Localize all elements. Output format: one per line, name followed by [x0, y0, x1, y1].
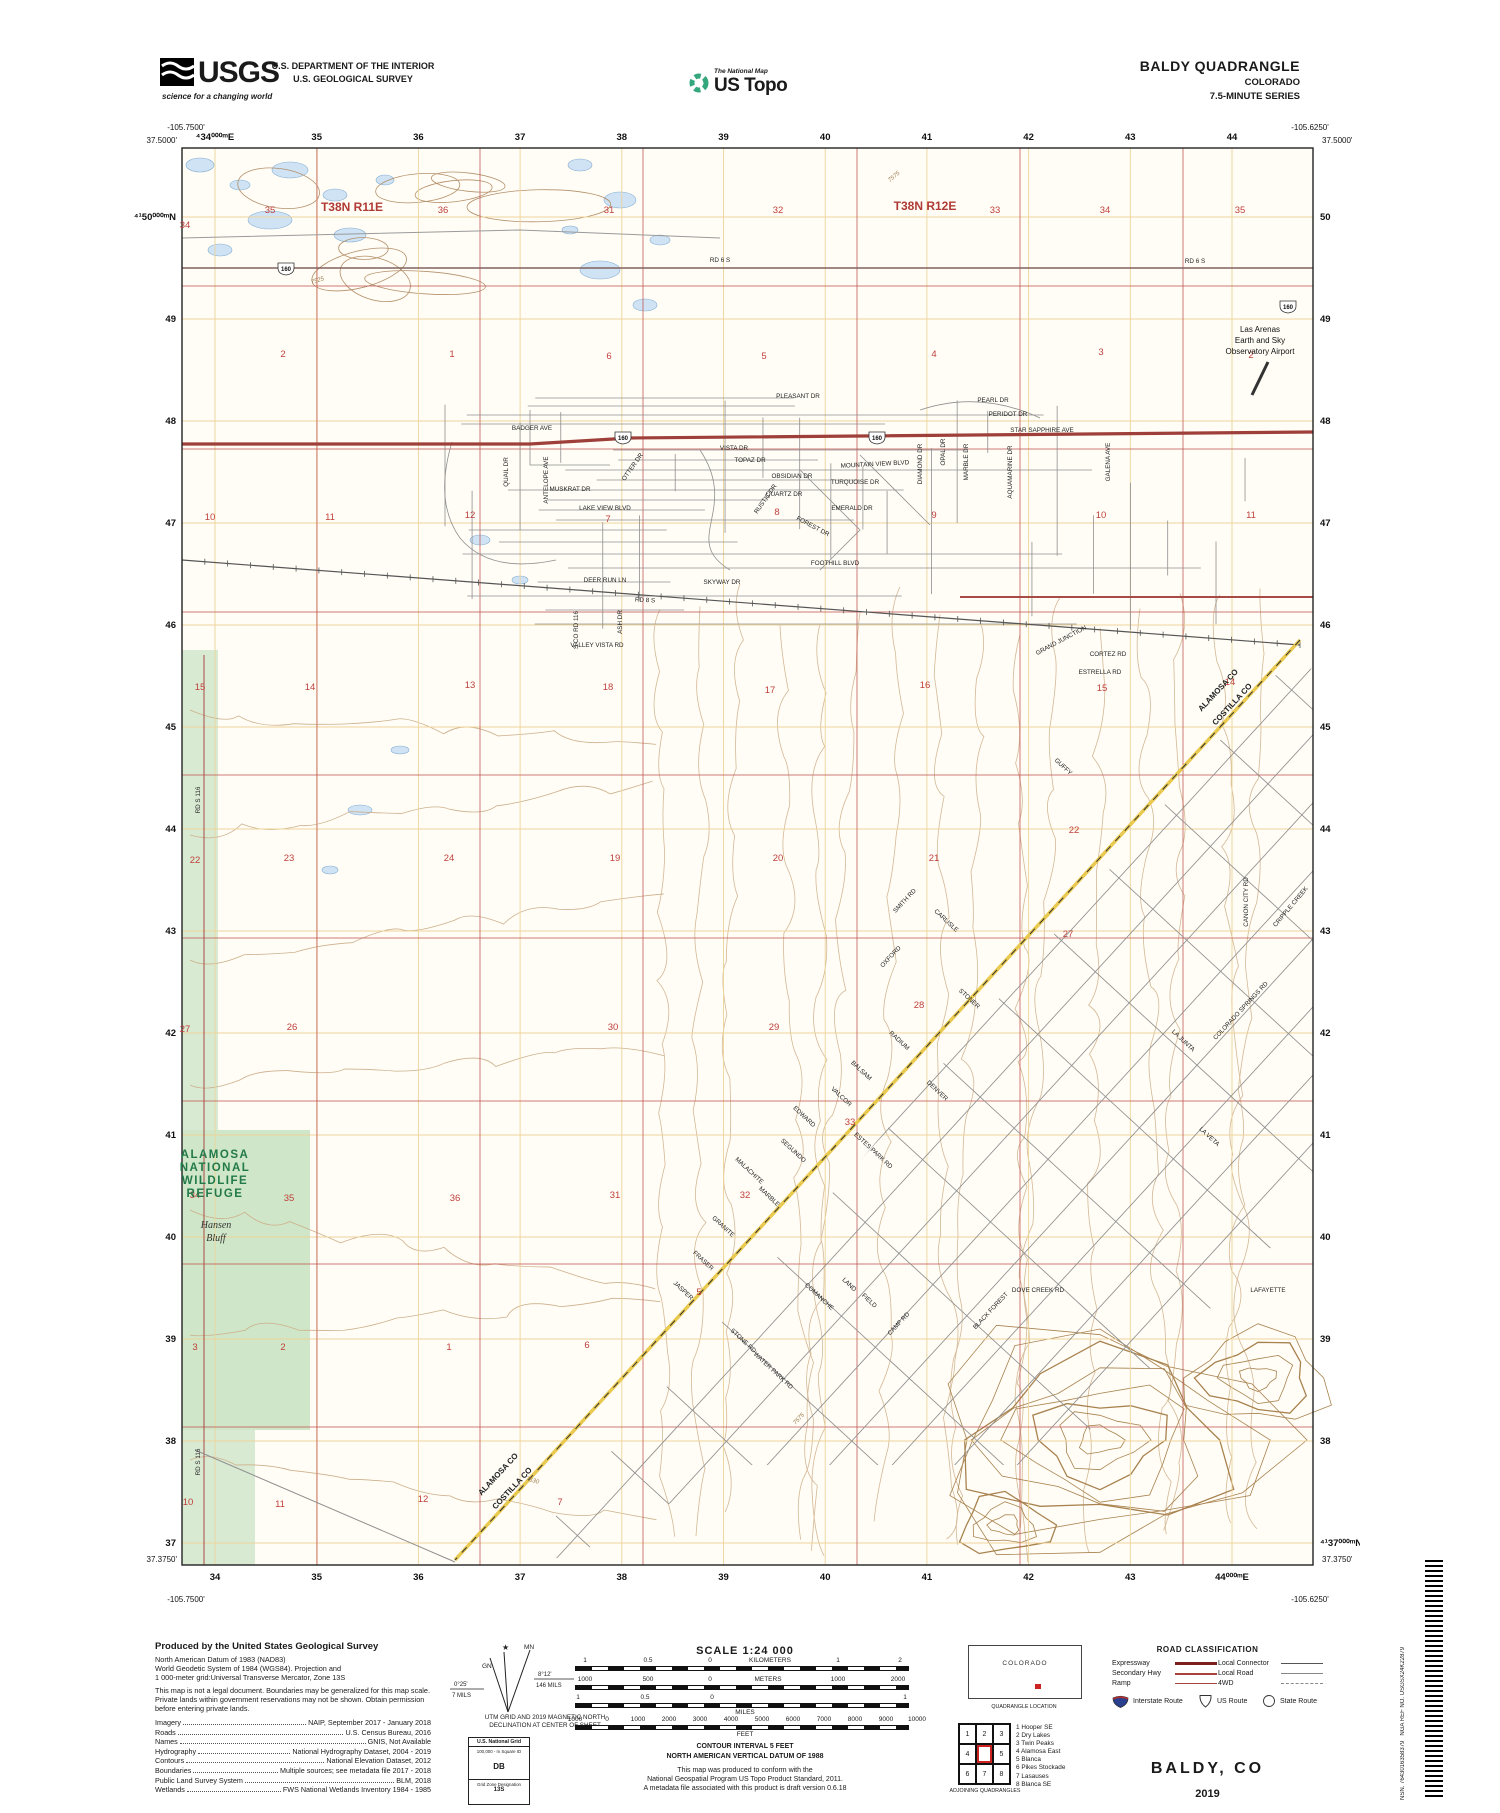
grid-label-right: 42 [1320, 1028, 1331, 1039]
section-number: 33 [845, 1117, 856, 1128]
credit-key: Contours [155, 1756, 184, 1766]
road-class-label: Local Connector [1218, 1660, 1276, 1667]
quad-series: 7.5-MINUTE SERIES [1040, 91, 1300, 102]
road-label: RD S 116 [195, 786, 202, 813]
credit-leader [245, 1782, 394, 1783]
road-class-line-sample [1175, 1683, 1217, 1684]
section-number: 36 [438, 205, 449, 216]
usgs-logo: USGS [160, 56, 279, 90]
dept-line2: U.S. GEOLOGICAL SURVEY [268, 73, 438, 86]
grid-label-right: 48 [1320, 416, 1331, 427]
section-number: 26 [287, 1022, 298, 1033]
svg-text:GN: GN [482, 1663, 492, 1670]
nsn-label: NSN. 7643016358379 NGA REF NO. USGSX24K2… [1398, 1560, 1420, 1800]
road-class-line-sample [1175, 1662, 1217, 1665]
road-label: CORTEZ RD [1090, 651, 1127, 658]
topo-map-canvas: ⁴34⁰⁰⁰ᵐE35363738394041424344343536373839… [100, 110, 1360, 1630]
us-route-shield-number: 160 [1283, 305, 1294, 311]
adjoining-cell: 8 [993, 1764, 1010, 1784]
section-number: 3 [192, 1342, 197, 1353]
road-class-label: Expressway [1112, 1660, 1170, 1667]
refuge-label: ALAMOSA [181, 1149, 250, 1161]
credit-row: ContoursNational Elevation Dataset, 2012 [155, 1756, 431, 1766]
grid-label-top: 39 [718, 132, 729, 143]
scale-bar [575, 1725, 909, 1730]
airport-label: Las Arenas [1240, 325, 1280, 334]
lake [376, 175, 394, 185]
credit-key: Hydrography [155, 1747, 196, 1757]
adjoining-name: 5 Blanca [1016, 1756, 1106, 1764]
lake [562, 226, 578, 234]
scale-tick-label: 0 [710, 1694, 714, 1701]
grid-label-top: 35 [311, 132, 322, 143]
section-number: 22 [190, 855, 201, 866]
adjoining-name: 6 Pikes Stockade [1016, 1764, 1106, 1772]
declination-diagram: ★ MN GN 0°25' 7 MILS 8°12' 146 MILS [440, 1642, 580, 1716]
scale-tick-label: 2000 [891, 1676, 905, 1683]
refuge-label: NATIONAL [180, 1162, 251, 1174]
section-number: 3 [1098, 347, 1103, 358]
grid-label-top: 42 [1023, 132, 1034, 143]
us-route-shield-number: 160 [872, 436, 883, 442]
road-label: DIAMOND DR [917, 443, 924, 484]
ustopo-logo: The National Map US Topo [688, 68, 787, 97]
production-block: Produced by the United States Geological… [155, 1641, 431, 1795]
road-label: FOOTHILL BLVD [811, 560, 860, 567]
grid-label-top: 44 [1227, 132, 1238, 143]
credit-value: FWS National Wetlands Inventory 1984 - 1… [283, 1785, 431, 1795]
adjoining-name: 1 Hooper SE [1016, 1724, 1106, 1732]
grid-label-left: 39 [165, 1334, 176, 1345]
grid-label-left: 37 [165, 1538, 176, 1549]
credit-value: National Hydrography Dataset, 2004 - 201… [292, 1747, 431, 1757]
grid-label-bottom: 36 [413, 1572, 424, 1583]
road-label: LAKE VIEW BLVD [579, 505, 631, 512]
section-number: 23 [284, 853, 295, 864]
grid-label-right: 49 [1320, 314, 1331, 325]
credit-value: U.S. Census Bureau, 2016 [345, 1728, 431, 1738]
credit-value: Multiple sources; see metadata file 2017… [280, 1766, 431, 1776]
quad-state: COLORADO [1040, 77, 1300, 88]
credit-key: Names [155, 1737, 178, 1747]
credit-leader [186, 1762, 324, 1763]
scale-tick-label: 5000 [755, 1716, 769, 1723]
adjoining-name: 4 Alamosa East [1016, 1748, 1106, 1756]
section-number: 31 [610, 1190, 621, 1201]
map-paper [182, 148, 1313, 1565]
section-number: 1 [449, 349, 454, 360]
road-label: CANON CITY RD [1243, 877, 1250, 927]
road-class-row: Secondary Hwy [1112, 1670, 1217, 1677]
section-number: 36 [450, 1193, 461, 1204]
contour-interval-note: CONTOUR INTERVAL 5 FEET [600, 1742, 890, 1751]
corner-coord: 37.3750' [147, 1555, 178, 1564]
grid-label-bottom: 34 [210, 1572, 221, 1583]
scale-tick-label: 1000 [578, 1676, 592, 1683]
airport-label: Observatory Airport [1226, 347, 1296, 356]
corner-coord: -105.6250' [1291, 123, 1329, 132]
road-label: GALENA AVE [1105, 443, 1112, 482]
credit-leader [183, 1724, 306, 1725]
road-label: TOPAZ DR [734, 457, 766, 464]
lake [186, 158, 214, 172]
grid-label-top: 43 [1125, 132, 1136, 143]
interstate-shield-icon [1112, 1694, 1129, 1708]
road-label: PLEASANT DR [776, 393, 820, 400]
road-class-row: Expressway [1112, 1660, 1217, 1667]
road-label: EMERALD DR [831, 505, 873, 512]
scale-tick-label: 10000 [908, 1716, 926, 1723]
section-number: 21 [929, 853, 940, 864]
township-label: T38N R11E [321, 200, 383, 214]
grid-label-right: 39 [1320, 1334, 1331, 1345]
svg-text:0°25': 0°25' [454, 1682, 468, 1688]
adjoining-quadrangle-names: 1 Hooper SE2 Dry Lakes3 Twin Peaks4 Alam… [1016, 1724, 1106, 1789]
legal-paragraph: This map is not a legal document. Bounda… [155, 1686, 431, 1713]
road-class-row: Local Road [1218, 1670, 1323, 1677]
credit-value: National Elevation Dataset, 2012 [326, 1756, 431, 1766]
section-number: 32 [740, 1190, 751, 1201]
adjoining-caption: ADJOINING QUADRANGLES [930, 1788, 1040, 1794]
road-label: LAFAYETTE [1250, 1287, 1285, 1294]
section-number: 31 [604, 205, 615, 216]
road-label: RD 8 S [635, 596, 656, 604]
bluff-label: Hansen [200, 1220, 232, 1231]
grid-label-top: 38 [617, 132, 628, 143]
section-number: 7 [605, 514, 610, 525]
corner-coord: 37.3750' [1322, 1555, 1353, 1564]
adjoining-name: 7 Lasauses [1016, 1773, 1106, 1781]
road-classification-title: ROAD CLASSIFICATION [1100, 1645, 1315, 1654]
usng-gzd-label: Grid Zone Designation [469, 1779, 529, 1787]
section-number: 5 [761, 351, 766, 362]
road-label: OPAL DR [940, 438, 947, 465]
dept-line1: U.S. DEPARTMENT OF THE INTERIOR [268, 60, 438, 73]
road-label: STAR SAPPHIRE AVE [1010, 427, 1073, 434]
section-number: 5 [696, 1287, 701, 1298]
sheet-year: 2019 [1100, 1788, 1315, 1800]
credit-row: HydrographyNational Hydrography Dataset,… [155, 1747, 431, 1757]
grid-label-right: 43 [1320, 926, 1331, 937]
section-number: 34 [180, 220, 191, 231]
state-name: COLORADO [969, 1660, 1081, 1667]
grid-label-left: 41 [165, 1130, 176, 1141]
road-label: DEER RUN LN [584, 577, 627, 584]
lake [391, 746, 409, 754]
lake [650, 235, 670, 245]
credit-leader [180, 1743, 366, 1744]
adjoining-name: 3 Twin Peaks [1016, 1740, 1106, 1748]
quadrangle-location-box: COLORADO [968, 1645, 1082, 1699]
quad-name: BALDY QUADRANGLE [1040, 58, 1300, 74]
road-label: RD 6 S [1185, 258, 1205, 265]
conform-line1: This map was produced to conform with th… [600, 1766, 890, 1775]
scale-bar [575, 1666, 909, 1671]
scale-tick-label: 9000 [879, 1716, 893, 1723]
us-route-label: US Route [1217, 1698, 1247, 1705]
grid-label-bottom: 35 [311, 1572, 322, 1583]
lake [348, 805, 372, 815]
conform-line3: A metadata file associated with this pro… [600, 1784, 890, 1793]
section-number: 22 [1069, 825, 1080, 836]
grid-label-bottom: 38 [617, 1572, 628, 1583]
section-number: 7 [557, 1497, 562, 1508]
section-number: 35 [265, 205, 276, 216]
grid-label-right: 46 [1320, 620, 1331, 631]
section-number: 6 [584, 1340, 589, 1351]
section-number: 33 [990, 205, 1001, 216]
section-number: 27 [1063, 929, 1074, 940]
road-class-label: Ramp [1112, 1680, 1170, 1687]
utm-caption-line1: UTM GRID AND 2019 MAGNETIC NORTH [430, 1714, 660, 1722]
road-label: RD S 116 [195, 1448, 202, 1475]
lake [322, 866, 338, 874]
section-number: 2 [280, 1342, 285, 1353]
section-number: 10 [1096, 510, 1107, 521]
adjoining-cell: 4 [959, 1744, 976, 1764]
scale-tick-label: 0 [708, 1676, 712, 1683]
grid-label-right: 40 [1320, 1232, 1331, 1243]
scale-tick-label: 500 [643, 1676, 654, 1683]
road-label: SKYWAY DR [704, 579, 741, 586]
lake [633, 299, 657, 311]
grid-label-top: ⁴34⁰⁰⁰ᵐE [196, 132, 234, 143]
road-label: QUARTZ DR [766, 491, 803, 498]
grid-label-left: 44 [165, 824, 176, 835]
adjoining-cell: 6 [959, 1764, 976, 1784]
corner-coord: -105.6250' [1291, 1595, 1329, 1604]
grid-label-left: 45 [165, 722, 176, 733]
credit-key: Wetlands [155, 1785, 185, 1795]
section-number: 29 [769, 1022, 780, 1033]
section-number: 2 [280, 349, 285, 360]
section-number: 28 [914, 1000, 925, 1011]
grid-label-bottom: 42 [1023, 1572, 1034, 1583]
section-number: 16 [920, 680, 931, 691]
credit-key: Public Land Survey System [155, 1776, 243, 1786]
section-number: 17 [765, 685, 776, 696]
road-class-label: Secondary Hwy [1112, 1670, 1170, 1677]
adjoining-cell: 7 [976, 1764, 993, 1784]
scale-tick-label: 6000 [786, 1716, 800, 1723]
credit-leader [193, 1772, 278, 1773]
grid-label-left: 47 [165, 518, 176, 529]
us-route-shield-icon [1198, 1694, 1213, 1708]
road-class-row: Ramp [1112, 1680, 1217, 1687]
credit-row: Public Land Survey SystemBLM, 2018 [155, 1776, 431, 1786]
scale-unit-label: MILES [735, 1709, 755, 1716]
scale-tick-label: 1 [576, 1694, 580, 1701]
road-label: MUSKRAT DR [549, 486, 591, 493]
section-number: 18 [603, 682, 614, 693]
road-label: RD 6 S [710, 257, 730, 264]
airport-label: Earth and Sky [1235, 336, 1285, 345]
credit-value: NAIP, September 2017 - January 2018 [308, 1718, 431, 1728]
us-route-row: US Route [1198, 1694, 1247, 1708]
scale-tick-label: 1000 [568, 1716, 582, 1723]
grid-label-left: 46 [165, 620, 176, 631]
credit-row: NamesGNIS, Not Available [155, 1737, 431, 1747]
road-class-row: Local Connector [1218, 1660, 1323, 1667]
grid-label-top: 41 [922, 132, 933, 143]
road-label: AQUAMARINE DR [1007, 445, 1014, 499]
credit-leader [187, 1791, 281, 1792]
lake [230, 180, 250, 190]
section-number: 11 [275, 1499, 285, 1510]
state-route-label: State Route [1280, 1698, 1317, 1705]
section-number: 35 [1235, 205, 1246, 216]
us-route-shield-number: 160 [618, 436, 629, 442]
scale-tick-label: 1 [903, 1694, 907, 1701]
adjoining-cell: 3 [993, 1724, 1010, 1744]
usng-gzd: 13S [469, 1787, 529, 1793]
datum-line1: North American Datum of 1983 (NAD83) [155, 1655, 431, 1664]
road-class-label: Local Road [1218, 1670, 1276, 1677]
corner-coord: 37.5000' [147, 136, 178, 145]
section-number: 8 [774, 507, 779, 518]
usng-square-id-label: 100,000 - m Square ID [469, 1747, 529, 1754]
scale-tick-label: 1000 [831, 1676, 845, 1683]
svg-text:★: ★ [502, 1643, 509, 1652]
road-label: VISTA DR [720, 445, 749, 452]
grid-label-right: 47 [1320, 518, 1331, 529]
section-number: 30 [608, 1022, 619, 1033]
grid-label-left: 42 [165, 1028, 176, 1039]
interstate-route-row: Interstate Route [1112, 1694, 1183, 1708]
grid-label-right: 45 [1320, 722, 1331, 733]
credit-key: Imagery [155, 1718, 181, 1728]
usgs-wordmark: USGS [198, 56, 279, 90]
scale-tick-label: 0 [605, 1716, 609, 1723]
section-number: 24 [444, 853, 455, 864]
road-class-line-sample [1281, 1673, 1323, 1674]
refuge-label: WILDLIFE [182, 1175, 248, 1187]
section-number: 1 [446, 1342, 451, 1353]
credit-key: Roads [155, 1728, 176, 1738]
scale-tick-label: METERS [754, 1676, 781, 1683]
road-label: QUAIL DR [503, 457, 510, 487]
ustopo-label: US Topo [714, 75, 787, 97]
lake [208, 244, 232, 256]
usgs-wave-icon [160, 56, 196, 90]
scale-tick-label: 1 [836, 1657, 840, 1664]
usgs-tagline: science for a changing world [162, 92, 272, 101]
department-heading: U.S. DEPARTMENT OF THE INTERIOR U.S. GEO… [268, 60, 438, 86]
credit-value: GNIS, Not Available [368, 1737, 431, 1747]
usng-square: DB [469, 1754, 529, 1779]
quad-title-block: BALDY QUADRANGLE COLORADO 7.5-MINUTE SER… [1040, 58, 1300, 102]
usgs-topo-sheet: { "header": { "usgs": "USGS", "usgs_tagl… [0, 0, 1500, 1813]
grid-label-left: 49 [165, 314, 176, 325]
scale-tick-label: 7000 [817, 1716, 831, 1723]
grid-label-right: 50 [1320, 212, 1331, 223]
township-label: T38N R12E [894, 199, 957, 213]
section-number: 12 [418, 1494, 429, 1505]
grid-label-top: 37 [515, 132, 526, 143]
svg-text:146 MILS: 146 MILS [536, 1683, 562, 1689]
adjoining-cell [976, 1744, 993, 1764]
section-number: 11 [325, 512, 335, 523]
quadrangle-location-caption: QUADRANGLE LOCATION [962, 1704, 1086, 1710]
scale-tick-label: 8000 [848, 1716, 862, 1723]
lake [580, 261, 620, 279]
adjoining-cell: 2 [976, 1724, 993, 1744]
section-number: 19 [610, 853, 621, 864]
road-label: ESTRELLA RD [1079, 669, 1122, 676]
bluff-label: Bluff [206, 1233, 227, 1244]
scale-tick-label: 0 [708, 1657, 712, 1664]
road-class-line-sample [1281, 1683, 1323, 1684]
grid-label-left: 38 [165, 1436, 176, 1447]
scale-bar [575, 1685, 909, 1690]
road-class-row: 4WD [1218, 1680, 1323, 1687]
datum-line2: World Geodetic System of 1984 (WGS84). P… [155, 1664, 431, 1673]
adjoining-quadrangle-grid: 12345678 [958, 1723, 1011, 1785]
lake [334, 228, 366, 242]
scale-tick-label: 4000 [724, 1716, 738, 1723]
grid-label-top: 40 [820, 132, 831, 143]
adjoining-cell: 1 [959, 1724, 976, 1744]
section-number: 34 [1100, 205, 1111, 216]
road-label: DOVE CREEK RD [1012, 1287, 1065, 1294]
state-route-row: State Route [1262, 1694, 1317, 1708]
grid-label-left: 48 [165, 416, 176, 427]
data-credits-list: ImageryNAIP, September 2017 - January 20… [155, 1718, 431, 1795]
grid-label-bottom: 39 [718, 1572, 729, 1583]
national-map-icon [688, 72, 710, 94]
section-number: 35 [284, 1193, 295, 1204]
scale-bar [575, 1703, 909, 1708]
scale-tick-label: 0.5 [643, 1657, 652, 1664]
credit-row: BoundariesMultiple sources; see metadata… [155, 1766, 431, 1776]
section-number: 4 [931, 349, 936, 360]
section-number: 14 [305, 682, 316, 693]
nga-ref-number: NGA REF NO. USGSX24K22879 [1400, 1647, 1406, 1736]
grid-label-left: 40 [165, 1232, 176, 1243]
scale-title: SCALE 1:24 000 [600, 1645, 890, 1657]
refuge-label: REFUGE [187, 1188, 244, 1200]
svg-text:8°12': 8°12' [538, 1672, 552, 1678]
section-number: 11 [1246, 510, 1256, 521]
section-number: 6 [606, 351, 611, 362]
section-number: 10 [205, 512, 216, 523]
lake [568, 159, 592, 171]
grid-label-right: 41 [1320, 1130, 1331, 1141]
credit-value: BLM, 2018 [396, 1776, 431, 1786]
scale-tick-label: 0.5 [640, 1694, 649, 1701]
road-label: ASH DR [617, 610, 624, 634]
us-route-shield-number: 160 [281, 267, 292, 273]
grid-label-bottom: 40 [820, 1572, 831, 1583]
scale-tick-label: 1000 [631, 1716, 645, 1723]
grid-label-bottom: 41 [922, 1572, 933, 1583]
interstate-route-label: Interstate Route [1133, 1698, 1183, 1705]
adjoining-cell: 5 [993, 1744, 1010, 1764]
road-class-line-sample [1175, 1673, 1217, 1675]
road-label: ANTELOPE AVE [543, 456, 550, 503]
conform-line2: National Geospatial Program US Topo Prod… [600, 1775, 890, 1784]
road-label: MARBLE DR [963, 443, 970, 480]
scale-tick-label: 2000 [662, 1716, 676, 1723]
section-number: 15 [1097, 683, 1108, 694]
state-route-circle-icon [1262, 1694, 1276, 1708]
vertical-datum-note: NORTH AMERICAN VERTICAL DATUM OF 1988 [600, 1752, 890, 1761]
scale-tick-label: 2 [898, 1657, 902, 1664]
grid-label-left: 43 [165, 926, 176, 937]
grid-label-bottom: 37 [515, 1572, 526, 1583]
road-label: OBSIDIAN DR [772, 473, 813, 480]
corner-coord: 37.5000' [1322, 136, 1353, 145]
